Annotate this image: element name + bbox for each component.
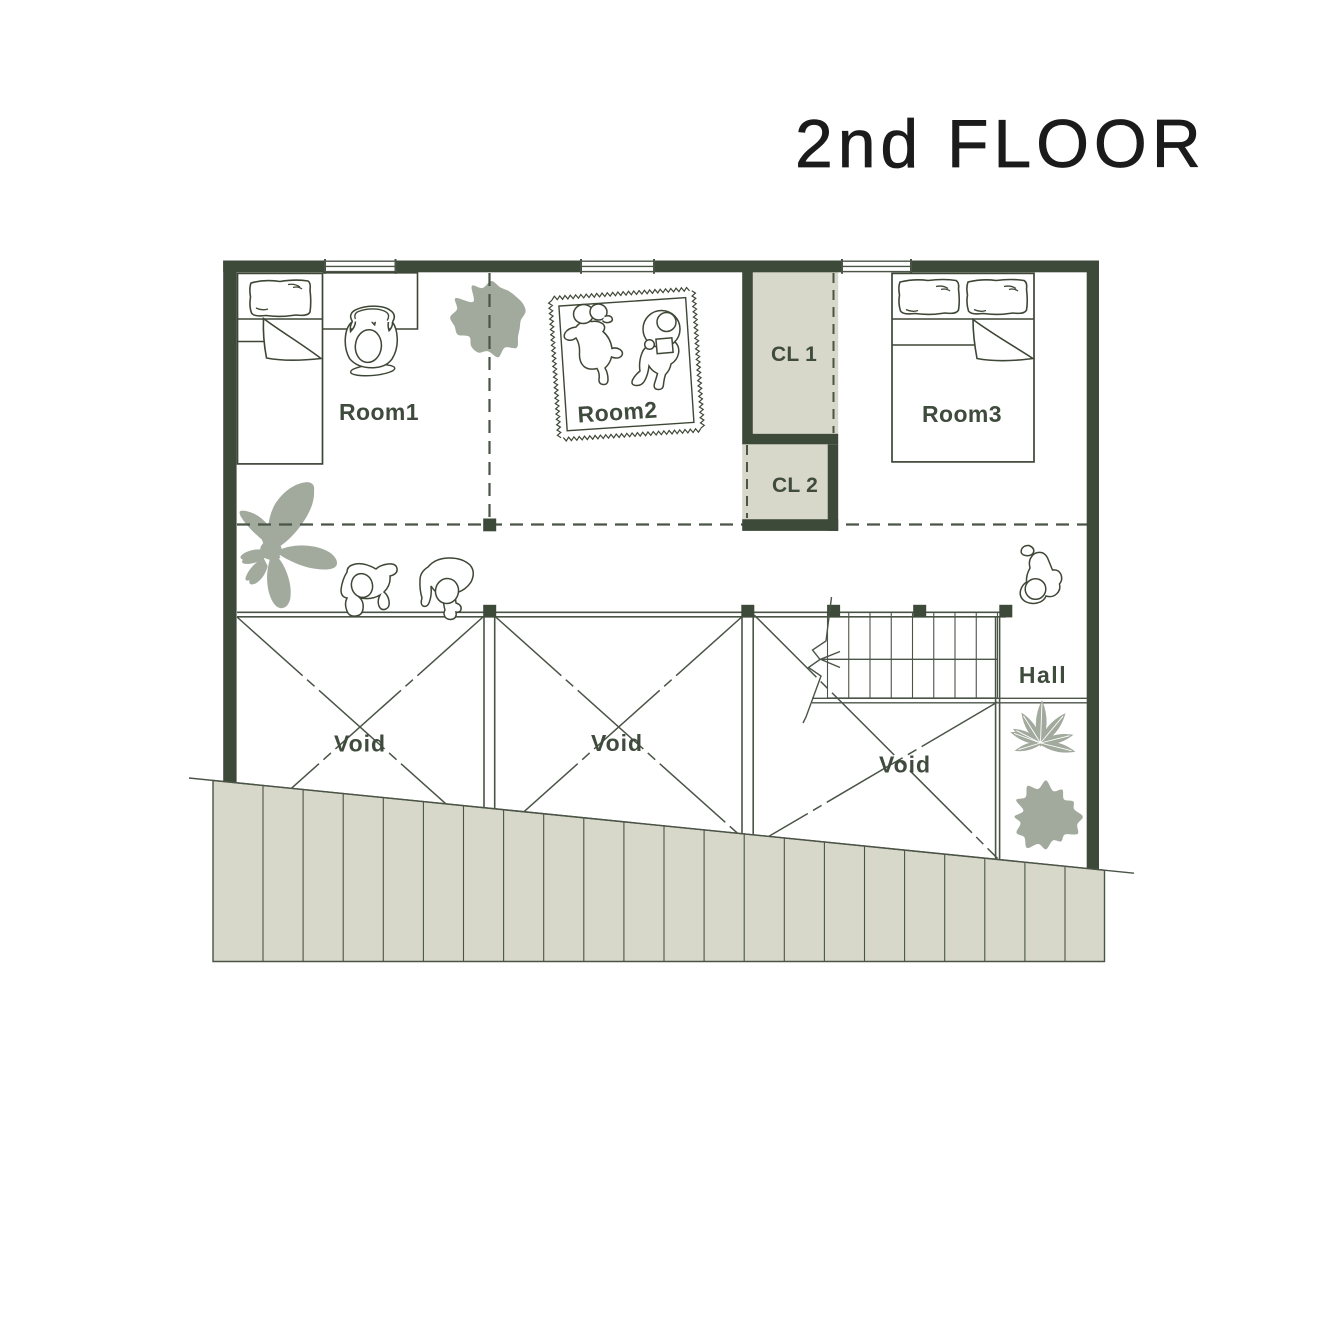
svg-text:2nd FLOOR: 2nd FLOOR: [795, 106, 1206, 182]
svg-text:Room3: Room3: [922, 401, 1002, 427]
svg-text:Room2: Room2: [577, 396, 659, 427]
svg-text:CL 1: CL 1: [771, 343, 817, 366]
svg-text:CL 2: CL 2: [772, 474, 818, 497]
svg-text:Hall: Hall: [1019, 662, 1067, 688]
svg-text:Void: Void: [591, 730, 643, 756]
svg-text:Room1: Room1: [339, 399, 419, 425]
svg-text:Void: Void: [879, 752, 931, 778]
svg-text:Void: Void: [334, 731, 386, 757]
